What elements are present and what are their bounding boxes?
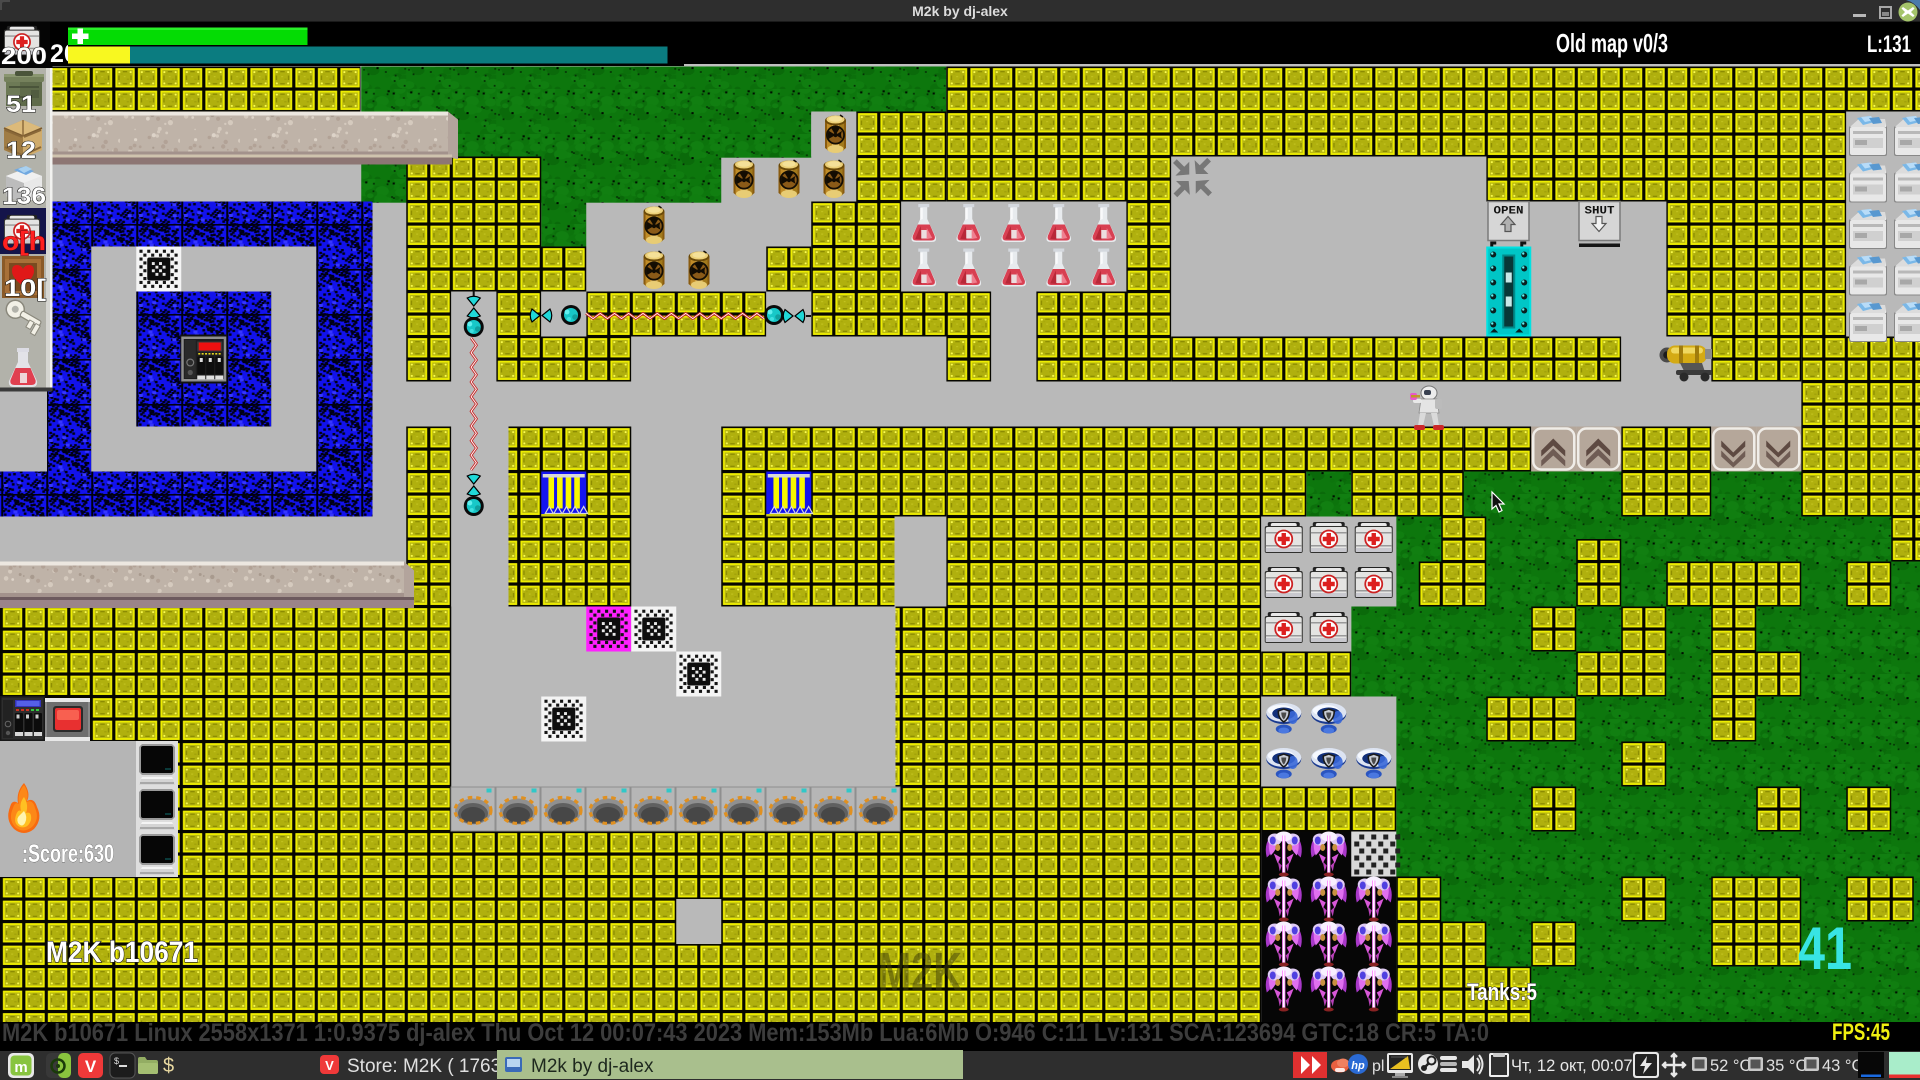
svg-text:V: V [325,1058,334,1073]
svg-text:M2k by dj-alex: M2k by dj-alex [531,1056,654,1077]
svg-text:L:131: L:131 [1867,31,1911,58]
svg-text:12: 12 [6,137,36,164]
svg-text:V: V [85,1057,97,1076]
svg-text:SHUT: SHUT [1585,206,1615,218]
svg-text:M2K b10671 Linux 2558x1371 1:0: M2K b10671 Linux 2558x1371 1:0.9375 dj-a… [2,1019,1489,1047]
svg-text:136: 136 [2,183,46,210]
svg-text:$: $ [114,1056,119,1066]
svg-text:M2k by dj-alex: M2k by dj-alex [912,3,1008,19]
svg-text:pl: pl [1372,1058,1384,1075]
svg-text:43 °C: 43 °C [1822,1057,1864,1075]
svg-text:FPS:45: FPS:45 [1832,1019,1890,1046]
svg-text:o[h: o[h [2,226,46,256]
svg-text:Old map v0/3: Old map v0/3 [1556,28,1668,58]
svg-text:hp: hp [1351,1060,1365,1072]
svg-text:35 °C: 35 °C [1766,1057,1808,1075]
svg-text:Чт, 12 окт, 00:07: Чт, 12 окт, 00:07 [1511,1057,1633,1075]
svg-text:$: $ [163,1055,174,1077]
svg-text:M2K: M2K [878,942,962,1002]
svg-text:m: m [14,1059,27,1076]
svg-text:OPEN: OPEN [1494,206,1524,218]
svg-text:200: 200 [1,43,47,70]
svg-text:51: 51 [6,91,36,118]
svg-text::Score:630: :Score:630 [22,840,114,868]
svg-text:Tanks:5: Tanks:5 [1467,979,1537,1006]
svg-text:10[: 10[ [4,275,46,302]
svg-text:41: 41 [1798,915,1852,982]
svg-text:M2K b10671: M2K b10671 [46,936,198,969]
svg-text:52 °C: 52 °C [1710,1057,1752,1075]
